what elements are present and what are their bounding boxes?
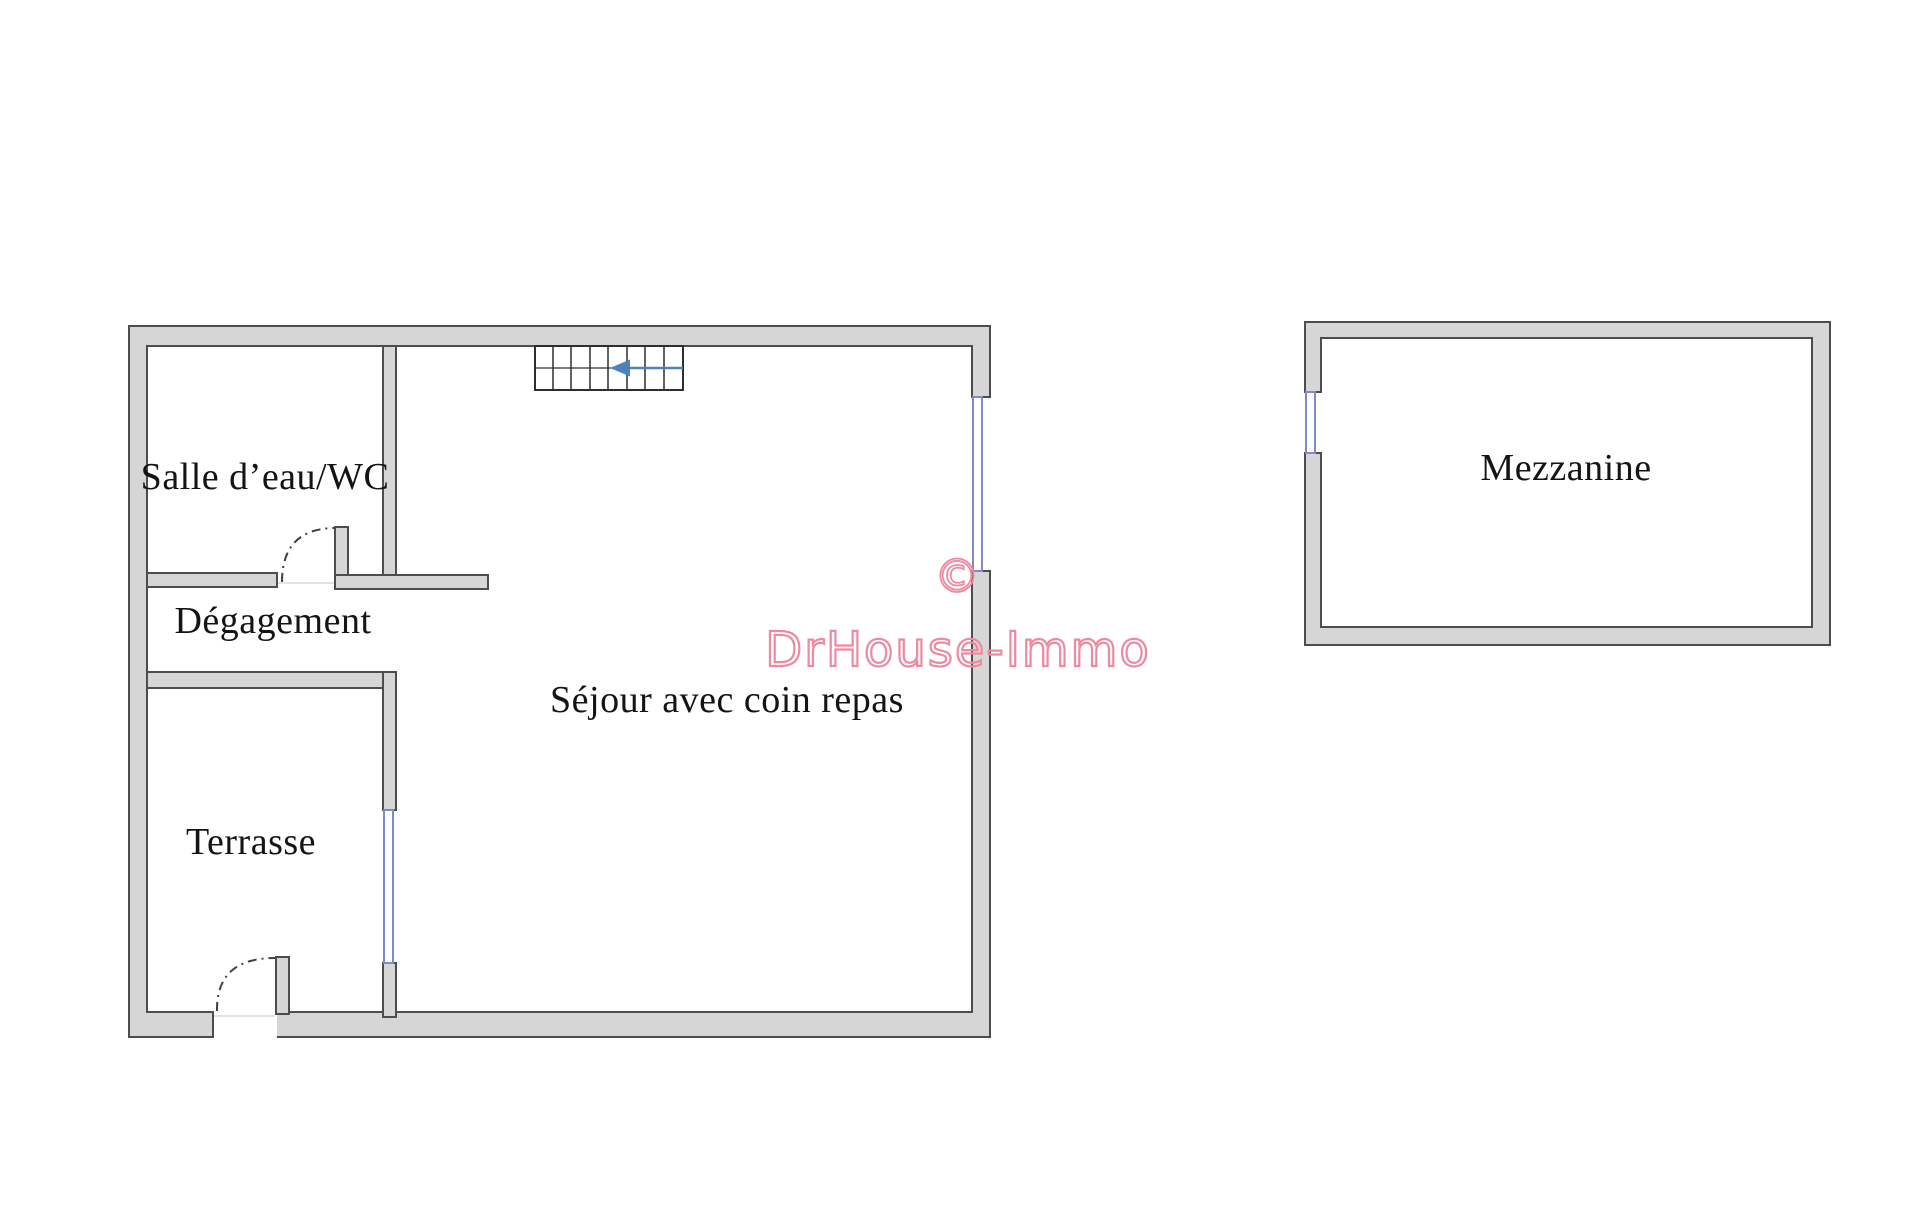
door-jamb-terrasse: [276, 957, 289, 1014]
terrasse-door-swing: [217, 958, 275, 1011]
mezzanine-window: [1306, 392, 1315, 453]
room-label-degagement: Dégagement: [174, 599, 371, 643]
wall-degagement-bottom: [147, 672, 396, 688]
salle-eau-door-swing: [282, 528, 334, 582]
terrace-door-opening: [212, 1010, 277, 1039]
room-label-mezzanine: Mezzanine: [1480, 446, 1651, 490]
wall-terrasse-right-lower: [383, 963, 396, 1017]
wall-salle-eau-bottom: [147, 573, 277, 587]
watermark-text: DrHouse-Immo: [765, 622, 1150, 678]
sejour-window: [973, 397, 982, 571]
floorplan-page: Salle d’eau/WC Dégagement Terrasse Séjou…: [0, 0, 1920, 1224]
wall-stub-sejour: [335, 575, 488, 589]
room-label-sejour: Séjour avec coin repas: [550, 678, 904, 722]
room-label-salle-eau-wc: Salle d’eau/WC: [141, 455, 390, 499]
room-label-terrasse: Terrasse: [186, 820, 316, 864]
staircase: [535, 346, 683, 390]
terrasse-window: [384, 810, 393, 963]
watermark-copyright-icon: ©: [934, 549, 980, 603]
wall-terrasse-right-upper: [383, 672, 396, 810]
